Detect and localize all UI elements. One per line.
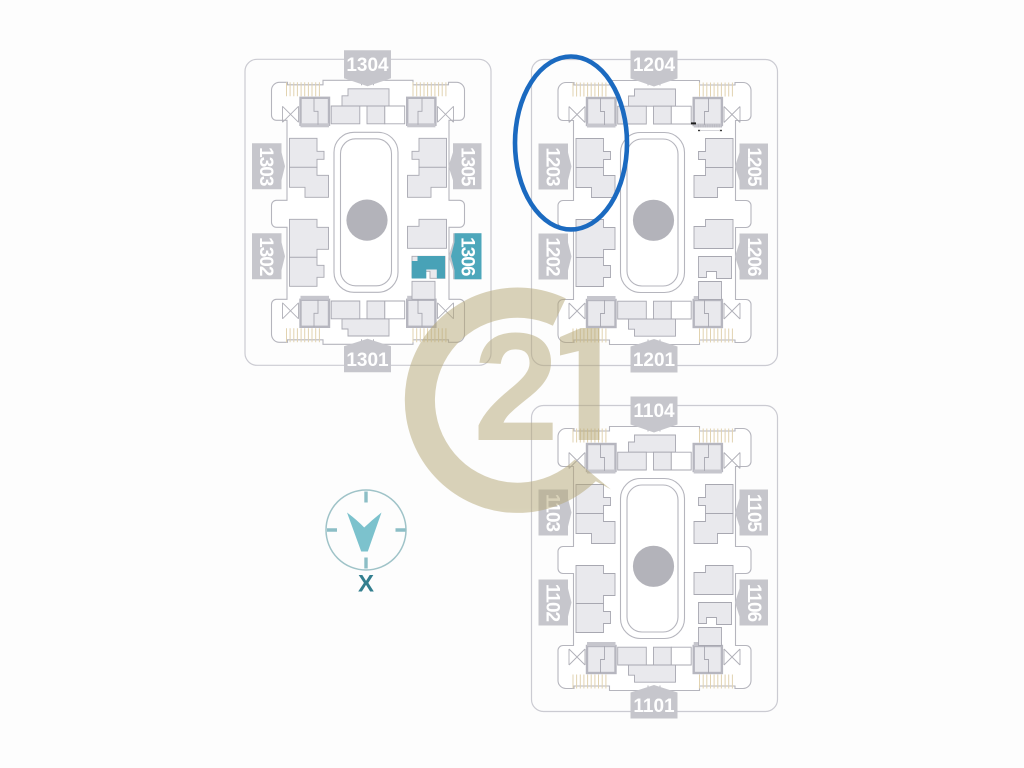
svg-text:1105: 1105 [743,494,764,533]
svg-text:1203: 1203 [542,147,563,186]
svg-text:X: X [358,571,374,598]
svg-text:1202: 1202 [542,237,563,276]
svg-text:1301: 1301 [346,350,389,371]
svg-text:1205: 1205 [743,147,764,187]
svg-text:1101: 1101 [633,696,675,717]
svg-text:1206: 1206 [743,237,764,276]
svg-text:1102: 1102 [542,584,563,622]
svg-text:2: 2 [473,301,559,473]
svg-text:1106: 1106 [743,584,764,622]
svg-text:1303: 1303 [255,147,276,186]
svg-text:1201: 1201 [633,350,676,371]
svg-text:1305: 1305 [456,147,477,187]
svg-text:1304: 1304 [346,55,389,76]
svg-text:1302: 1302 [255,237,276,276]
svg-text:1104: 1104 [633,401,675,422]
svg-text:1306: 1306 [456,237,477,276]
svg-text:1204: 1204 [633,55,676,76]
